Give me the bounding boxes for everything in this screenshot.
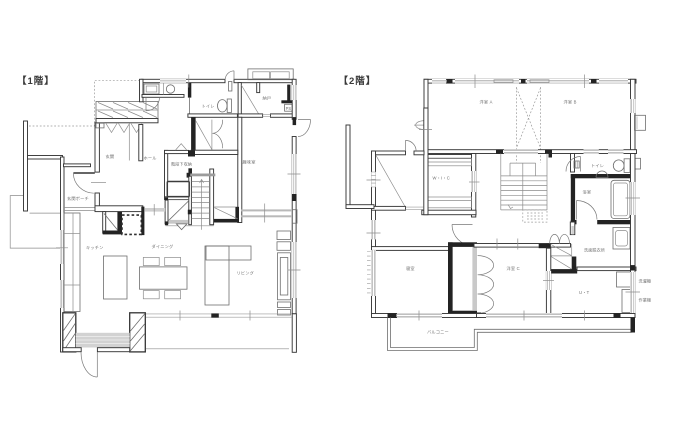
svg-text:寝室: 寝室 (406, 265, 415, 271)
svg-text:キッチン: キッチン (86, 245, 104, 250)
svg-text:洗面脱衣所: 洗面脱衣所 (584, 247, 605, 253)
svg-text:洋室 A: 洋室 A (480, 99, 493, 106)
svg-text:【1階】: 【1階】 (17, 75, 55, 87)
svg-text:トイレ: トイレ (591, 163, 604, 168)
svg-text:PS: PS (286, 106, 292, 111)
svg-text:浴室: 浴室 (583, 189, 592, 196)
svg-text:趣味室: 趣味室 (243, 159, 256, 166)
svg-text:納戸: 納戸 (263, 95, 272, 102)
svg-text:【2階】: 【2階】 (339, 75, 377, 87)
svg-text:W・I・C: W・I・C (433, 176, 451, 181)
svg-text:バルコニー: バルコニー (427, 330, 449, 335)
svg-text:洋室 B: 洋室 B (564, 99, 577, 106)
svg-text:階段下収納: 階段下収納 (171, 161, 192, 167)
svg-text:ダイニング: ダイニング (152, 243, 174, 250)
svg-text:トイレ: トイレ (202, 104, 215, 109)
svg-text:リビング: リビング (237, 270, 255, 277)
svg-text:洋室 C: 洋室 C (507, 265, 520, 272)
svg-text:作業棚: 作業棚 (639, 297, 652, 303)
svg-text:洗濯機: 洗濯機 (639, 278, 652, 284)
svg-text:U・T: U・T (579, 290, 590, 295)
svg-text:玄関ポーチ: 玄関ポーチ (67, 195, 89, 202)
svg-text:ホール: ホール (144, 156, 157, 161)
svg-text:玄関: 玄関 (106, 153, 115, 160)
